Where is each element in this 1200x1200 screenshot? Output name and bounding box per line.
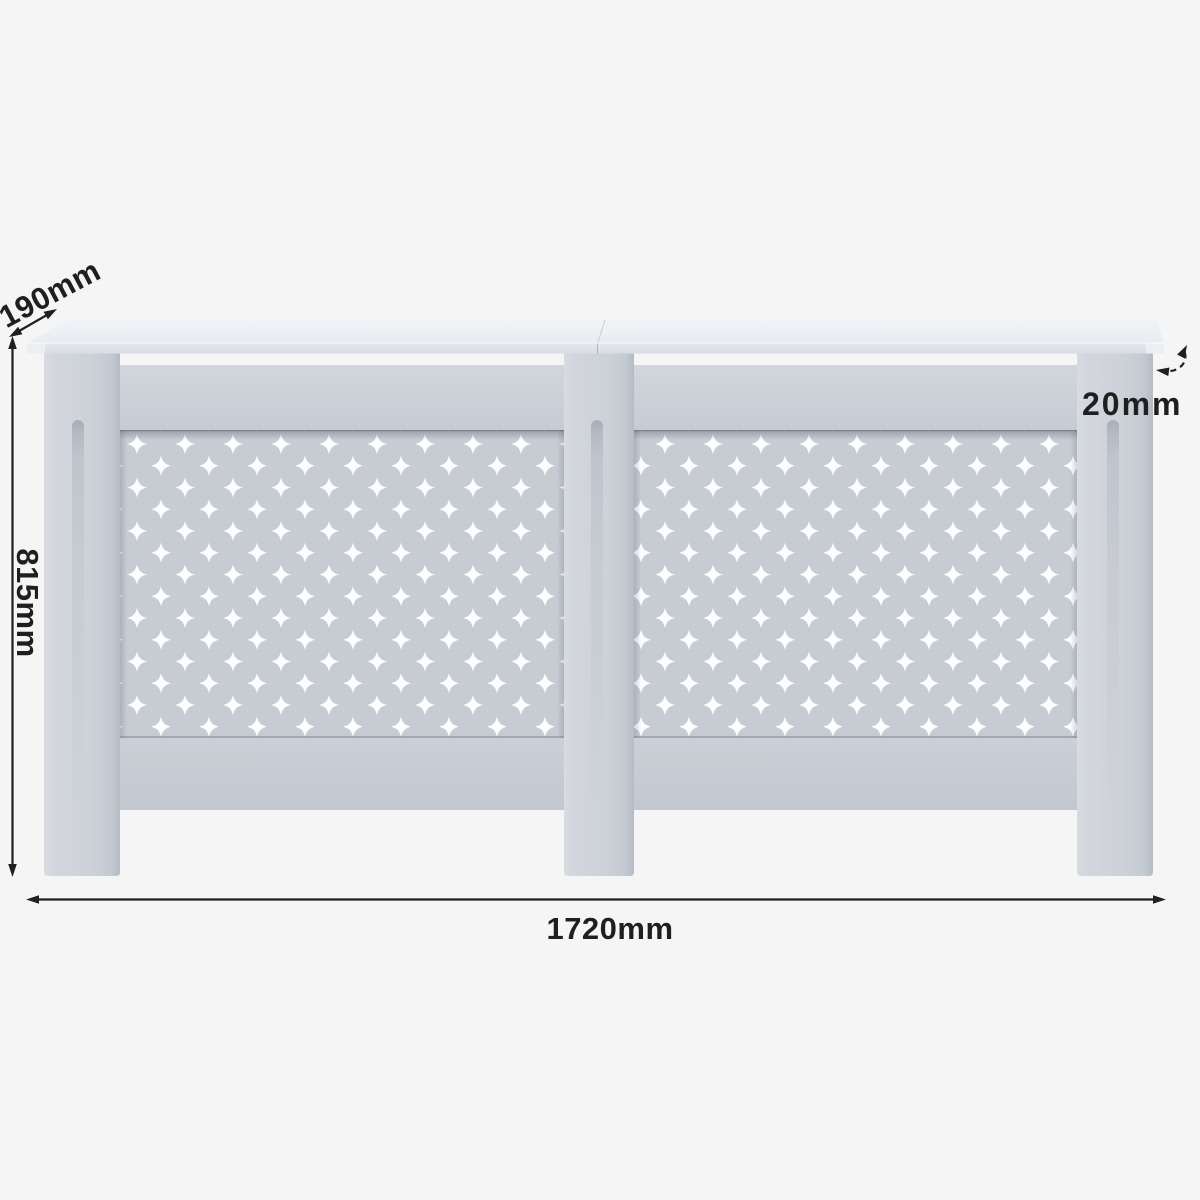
radiator-cover-dimension-diagram: 190mm 815mm 1720mm 20mm — [0, 0, 1200, 1200]
panel-right-shadow — [1070, 430, 1077, 738]
height-dimension-label: 815mm — [9, 543, 45, 663]
panel-top-shadow — [120, 430, 564, 440]
top-board-surface — [27, 319, 1164, 343]
arrow-right-icon — [1153, 895, 1166, 904]
thickness-dimension-label: 20mm — [1082, 386, 1183, 423]
top-board-end-cap-left — [27, 343, 45, 354]
post-groove-center — [591, 420, 603, 802]
lattice-pattern — [120, 430, 564, 738]
top-board-front-edge — [27, 343, 1164, 354]
top-rail-right — [634, 365, 1077, 430]
lattice-panel-right — [634, 430, 1077, 738]
width-dimension-label: 1720mm — [500, 911, 720, 947]
arrow-up-icon — [8, 336, 17, 349]
radiator-cover — [27, 319, 1164, 876]
top-rail-left — [120, 365, 564, 430]
panel-right-shadow — [557, 430, 564, 738]
bottom-rail-left — [120, 738, 564, 810]
panel-left-shadow — [634, 430, 641, 738]
panel-top-shadow — [634, 430, 1077, 440]
post-groove-right — [1107, 420, 1119, 802]
top-board-end-cap-right — [1146, 343, 1164, 354]
arrow-down-icon — [8, 864, 17, 877]
arrow-curve-up-icon — [1177, 343, 1191, 359]
lattice-pattern — [634, 430, 1077, 738]
diagram-canvas — [0, 0, 1200, 1200]
arrow-left-icon — [26, 895, 39, 904]
arrow-curve-left-icon — [1155, 366, 1169, 376]
bottom-rail-right — [634, 738, 1077, 810]
lattice-panel-left — [120, 430, 564, 738]
post-groove-left — [72, 420, 84, 802]
panel-left-shadow — [120, 430, 127, 738]
